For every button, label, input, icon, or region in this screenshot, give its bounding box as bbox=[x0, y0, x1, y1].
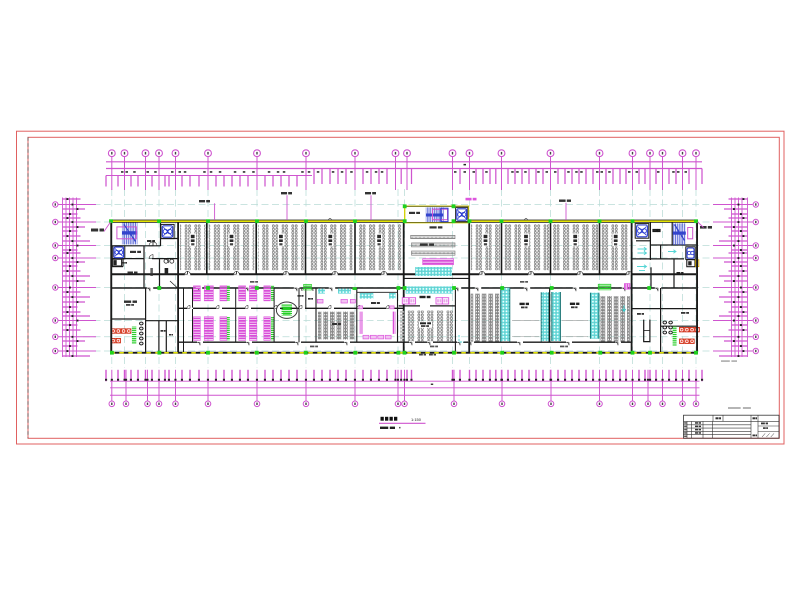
svg-text:1:150: 1:150 bbox=[411, 417, 422, 422]
